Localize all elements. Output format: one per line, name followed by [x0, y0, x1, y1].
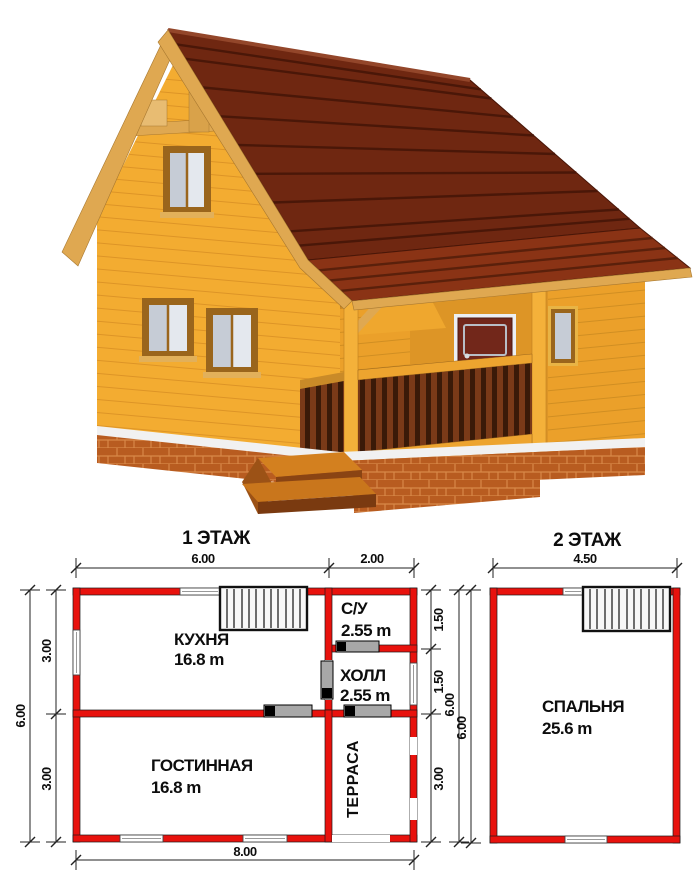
dim-top-2: 2.00 — [360, 551, 384, 566]
dim-left-3a: 3.00 — [39, 639, 54, 663]
room-area-bedroom: 25.6 m — [542, 719, 592, 738]
dim-right-3: 3.00 — [431, 767, 446, 791]
dim-top-6: 6.00 — [191, 551, 215, 566]
dim-left-outer: 6.00 — [13, 704, 28, 728]
porch-post-right — [532, 288, 546, 444]
house-plan-image: 1 ЭТАЖ — [0, 0, 700, 887]
dim-right-150a: 1.50 — [431, 608, 446, 632]
door-hall-kitchen — [321, 661, 333, 699]
room-label-living: ГОСТИННАЯ — [151, 756, 253, 775]
door-su — [336, 641, 379, 652]
floor2-title: 2 ЭТАЖ — [553, 530, 622, 551]
right-wall-window — [548, 306, 578, 366]
floor1-stairs — [220, 587, 307, 630]
door-terrace — [344, 705, 391, 717]
floor2-stairs — [583, 587, 670, 631]
door-living — [264, 705, 312, 717]
screenshot-root: 1 ЭТАЖ — [0, 0, 700, 887]
room-area-hall: 2.55 m — [340, 686, 390, 705]
porch-post-left — [344, 297, 358, 476]
dim-right-outer: 6.00 — [442, 693, 457, 717]
dim-left-3b: 3.00 — [39, 767, 54, 791]
room-area-kitchen: 16.8 m — [174, 650, 224, 669]
room-label-bedroom: СПАЛЬНЯ — [542, 697, 624, 716]
room-label-terrace: ТЕРРАСА — [345, 740, 362, 818]
room-label-bathroom: С/У — [341, 599, 368, 618]
room-area-bathroom: 2.55 m — [341, 621, 391, 640]
wall-terrace-divider — [325, 710, 332, 842]
room-label-kitchen: КУХНЯ — [174, 630, 229, 649]
left-window-1 — [139, 298, 197, 362]
room-area-living: 16.8 m — [151, 778, 201, 797]
wall-left — [490, 588, 497, 843]
gable-upper-window — [160, 146, 214, 218]
dim-bottom-8: 8.00 — [233, 844, 257, 859]
room-label-hall: ХОЛЛ — [340, 666, 386, 685]
dim-top-450: 4.50 — [573, 551, 597, 566]
dim-left-6: 6.00 — [454, 716, 469, 740]
wall-right — [673, 588, 680, 843]
floor1-title: 1 ЭТАЖ — [182, 528, 251, 549]
dim-right-150b: 1.50 — [431, 670, 446, 694]
left-window-2 — [203, 308, 261, 378]
door-handle — [465, 354, 470, 359]
